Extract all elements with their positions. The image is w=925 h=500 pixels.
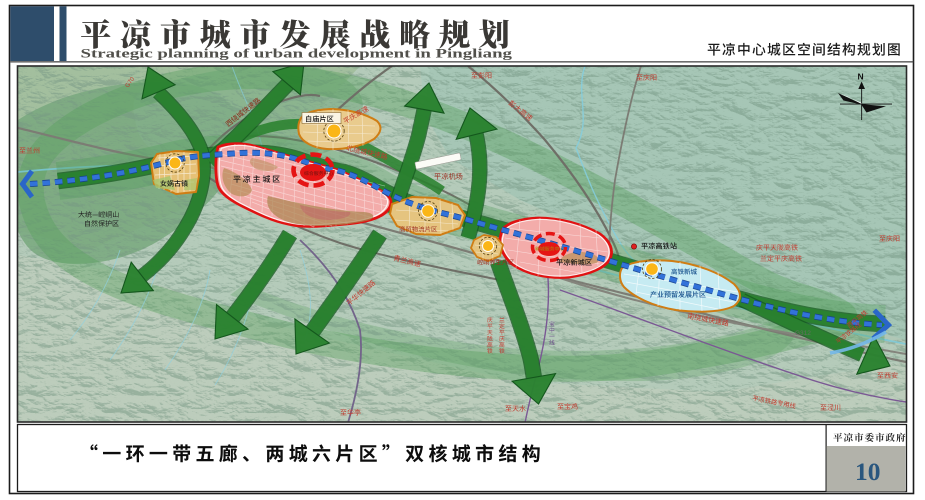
svg-text:Strategic planning of urban de: Strategic planning of urban development … <box>81 47 513 61</box>
svg-text:N: N <box>858 72 864 82</box>
svg-text:10: 10 <box>855 457 881 486</box>
svg-text:G312: G312 <box>795 330 811 337</box>
